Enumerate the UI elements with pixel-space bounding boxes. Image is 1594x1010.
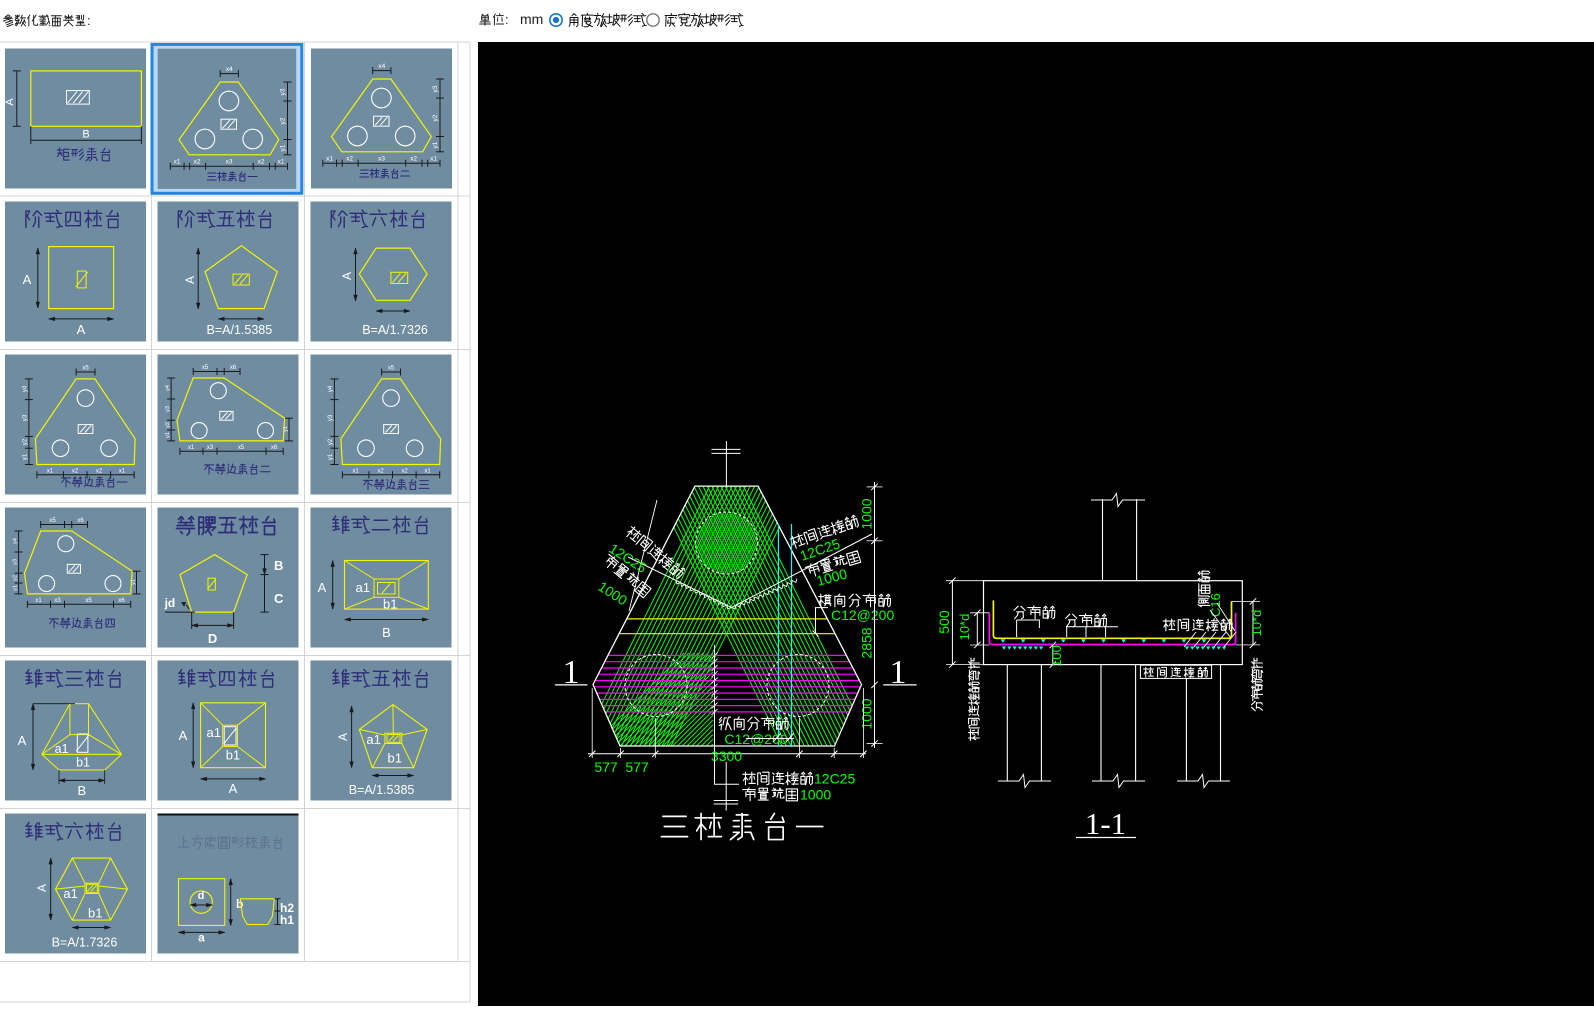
svg-text:A: A — [4, 98, 16, 106]
svg-text:x2: x2 — [410, 156, 417, 163]
svg-text:x1: x1 — [424, 468, 431, 474]
svg-text:x2: x2 — [72, 468, 79, 474]
svg-text:100: 100 — [1049, 645, 1064, 667]
svg-text:B=A/1.5385: B=A/1.5385 — [349, 783, 415, 797]
svg-text:B: B — [77, 783, 86, 798]
svg-text:577: 577 — [594, 759, 618, 775]
svg-text:x2: x2 — [258, 159, 265, 166]
svg-text:x1: x1 — [326, 156, 333, 163]
svg-text:y4: y4 — [23, 385, 29, 392]
svg-text:x1: x1 — [430, 156, 437, 163]
svg-text:A: A — [229, 781, 238, 796]
svg-text:12C25: 12C25 — [814, 771, 855, 787]
svg-text:x1: x1 — [119, 468, 126, 474]
svg-text:C: C — [274, 591, 284, 606]
svg-text:A: A — [77, 322, 86, 337]
svg-text:b1: b1 — [226, 748, 240, 763]
svg-text:b1: b1 — [388, 751, 402, 766]
svg-text:B: B — [274, 558, 283, 573]
svg-text:x5: x5 — [49, 518, 56, 524]
svg-text:D: D — [208, 631, 217, 646]
svg-text:x4: x4 — [378, 63, 385, 70]
svg-text::: : — [87, 13, 91, 28]
svg-text:1-1: 1-1 — [1085, 806, 1126, 841]
svg-text:y1: y1 — [165, 432, 171, 438]
svg-text:B: B — [382, 625, 391, 640]
svg-text:x3: x3 — [378, 156, 385, 163]
svg-text:y4: y4 — [165, 385, 171, 391]
svg-text:b1: b1 — [76, 756, 90, 770]
svg-text:x5: x5 — [85, 598, 92, 604]
svg-text:x2: x2 — [346, 156, 353, 163]
svg-text:A: A — [183, 276, 197, 284]
svg-text:x3: x3 — [54, 598, 61, 604]
svg-text:2858: 2858 — [859, 627, 875, 658]
svg-text:y2: y2 — [432, 114, 439, 121]
svg-text:B: B — [82, 129, 89, 141]
svg-text:y1: y1 — [432, 141, 439, 148]
svg-text:C12@200: C12@200 — [831, 607, 894, 623]
svg-text:x6: x6 — [230, 365, 237, 371]
svg-text:y4: y4 — [328, 385, 334, 392]
svg-text:C16: C16 — [1208, 593, 1223, 617]
svg-text:y2: y2 — [280, 117, 287, 124]
svg-text:a1: a1 — [55, 742, 69, 756]
svg-text:y1: y1 — [12, 585, 18, 591]
svg-text:y1: y1 — [280, 144, 287, 151]
svg-text::: : — [505, 12, 509, 27]
svg-text:b1: b1 — [88, 906, 102, 921]
svg-text:y3: y3 — [12, 559, 18, 565]
svg-text:A: A — [18, 733, 27, 748]
svg-text:x3: x3 — [207, 445, 214, 451]
svg-text:A: A — [336, 733, 350, 741]
svg-text:B=A/1.5385: B=A/1.5385 — [207, 323, 273, 337]
svg-text:y1: y1 — [23, 453, 29, 460]
svg-text:y1: y1 — [328, 453, 334, 460]
svg-text:y3: y3 — [328, 414, 334, 421]
svg-text:1000: 1000 — [800, 787, 831, 803]
svg-text:x1: x1 — [352, 468, 359, 474]
svg-text:A: A — [179, 728, 188, 743]
svg-text:10*d: 10*d — [957, 614, 972, 641]
svg-text:x2: x2 — [401, 468, 408, 474]
svg-text:a1: a1 — [356, 580, 370, 595]
svg-text:10*d: 10*d — [1249, 610, 1264, 637]
svg-text:x4: x4 — [226, 66, 233, 73]
svg-text:x5: x5 — [202, 365, 209, 371]
svg-text:y3: y3 — [23, 414, 29, 421]
svg-text:y1: y1 — [283, 426, 289, 432]
svg-text:y3: y3 — [432, 85, 439, 92]
svg-text:A: A — [340, 272, 354, 280]
svg-text:b1: b1 — [383, 597, 397, 612]
svg-text:A: A — [23, 272, 32, 287]
svg-text:x2: x2 — [194, 159, 201, 166]
svg-text:y2: y2 — [328, 438, 334, 445]
svg-text:x1: x1 — [278, 159, 285, 166]
svg-text:B=A/1.7326: B=A/1.7326 — [362, 323, 428, 337]
svg-text:A: A — [318, 580, 327, 595]
svg-text:3300: 3300 — [711, 748, 742, 764]
svg-text:a1: a1 — [366, 732, 380, 747]
svg-text:x2: x2 — [377, 468, 384, 474]
svg-text:y2: y2 — [23, 438, 29, 445]
svg-text:y3: y3 — [165, 406, 171, 412]
svg-text:x5: x5 — [82, 366, 89, 372]
svg-text:y2: y2 — [165, 422, 171, 428]
svg-text:mm: mm — [520, 11, 543, 27]
svg-text:y1: y1 — [131, 579, 137, 585]
svg-text:x3: x3 — [226, 159, 233, 166]
svg-text:h1: h1 — [280, 913, 294, 927]
svg-text:a1: a1 — [207, 725, 221, 740]
svg-text:jd: jd — [164, 596, 176, 610]
svg-text:1000: 1000 — [859, 498, 875, 529]
svg-text:x5: x5 — [388, 366, 395, 372]
svg-text:x6: x6 — [77, 518, 84, 524]
svg-text:y3: y3 — [280, 88, 287, 95]
svg-text:y2: y2 — [12, 575, 18, 581]
svg-text:x1: x1 — [174, 159, 181, 166]
svg-text:x1: x1 — [47, 468, 54, 474]
svg-text:x6: x6 — [118, 598, 125, 604]
svg-text:1000: 1000 — [859, 698, 875, 729]
svg-text:a: a — [198, 931, 205, 945]
svg-text:B=A/1.7326: B=A/1.7326 — [52, 936, 118, 950]
svg-text:x1: x1 — [188, 445, 195, 451]
svg-text:x1: x1 — [35, 598, 42, 604]
svg-text:a1: a1 — [63, 886, 77, 901]
svg-text:y4: y4 — [12, 538, 18, 544]
svg-text:x2: x2 — [96, 468, 103, 474]
svg-text:x6: x6 — [271, 445, 278, 451]
svg-text:x5: x5 — [238, 445, 245, 451]
svg-text:577: 577 — [625, 759, 649, 775]
svg-text:A: A — [35, 884, 49, 892]
svg-text:500: 500 — [936, 610, 952, 634]
svg-text:d: d — [198, 890, 205, 902]
